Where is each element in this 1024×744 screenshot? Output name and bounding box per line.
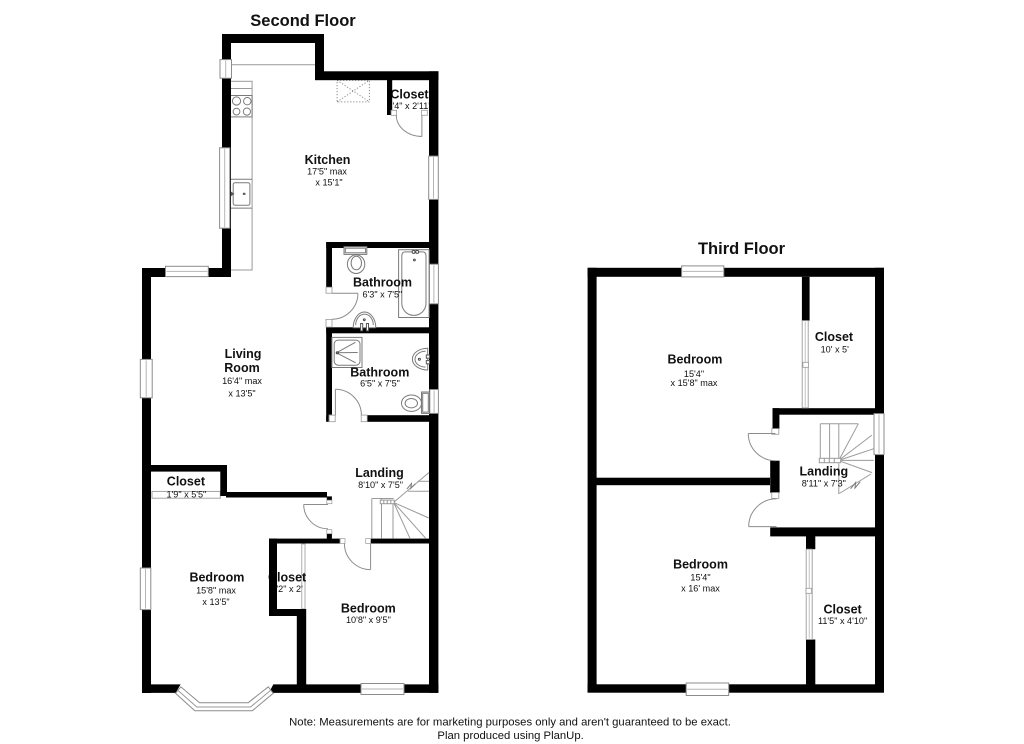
svg-text:Second Floor: Second Floor	[250, 12, 356, 30]
svg-text:Closet: Closet	[815, 330, 854, 344]
svg-text:Living: Living	[225, 347, 262, 361]
svg-text:11'5" x 4'10": 11'5" x 4'10"	[818, 616, 867, 626]
svg-text:10' x 5': 10' x 5'	[821, 345, 850, 355]
svg-text:16'4" max: 16'4" max	[222, 376, 262, 386]
svg-text:Closet: Closet	[390, 88, 429, 102]
svg-text:x 13'5": x 13'5"	[202, 597, 229, 607]
svg-text:x 15'8" max: x 15'8" max	[671, 378, 718, 388]
svg-text:6'5" x 7'5": 6'5" x 7'5"	[360, 378, 400, 388]
svg-text:Room: Room	[224, 361, 259, 375]
svg-text:17'5" max: 17'5" max	[307, 167, 347, 177]
svg-text:8'11" x 7'3": 8'11" x 7'3"	[802, 478, 846, 488]
svg-text:x 13'5": x 13'5"	[228, 388, 255, 398]
svg-text:Third Floor: Third Floor	[698, 240, 786, 258]
svg-text:x 15'1": x 15'1"	[315, 178, 342, 188]
svg-text:Plan produced using PlanUp.: Plan produced using PlanUp.	[437, 730, 583, 742]
svg-text:15'8" max: 15'8" max	[196, 585, 236, 595]
svg-text:8'10" x 7'5": 8'10" x 7'5"	[358, 480, 403, 490]
svg-text:Note: Measurements are for mar: Note: Measurements are for marketing pur…	[289, 716, 731, 728]
svg-text:Kitchen: Kitchen	[305, 153, 351, 167]
svg-text:6'3" x 7'5": 6'3" x 7'5"	[363, 289, 403, 299]
svg-text:15'4": 15'4"	[690, 572, 710, 582]
svg-text:7'4" x 2'11": 7'4" x 2'11"	[387, 101, 431, 111]
svg-text:Landing: Landing	[355, 466, 404, 480]
svg-text:10'8" x 9'5": 10'8" x 9'5"	[346, 615, 391, 625]
svg-text:1'9" x 5'5": 1'9" x 5'5"	[167, 489, 207, 499]
svg-text:Bedroom: Bedroom	[189, 571, 244, 585]
svg-text:Bedroom: Bedroom	[667, 353, 722, 367]
svg-text:Closet: Closet	[167, 475, 206, 489]
svg-text:Closet: Closet	[823, 603, 862, 617]
svg-text:Bathroom: Bathroom	[353, 275, 412, 289]
svg-text:x 16' max: x 16' max	[681, 584, 720, 594]
svg-text:Bedroom: Bedroom	[341, 601, 396, 615]
svg-text:Bedroom: Bedroom	[673, 557, 728, 571]
svg-text:Landing: Landing	[799, 464, 848, 478]
